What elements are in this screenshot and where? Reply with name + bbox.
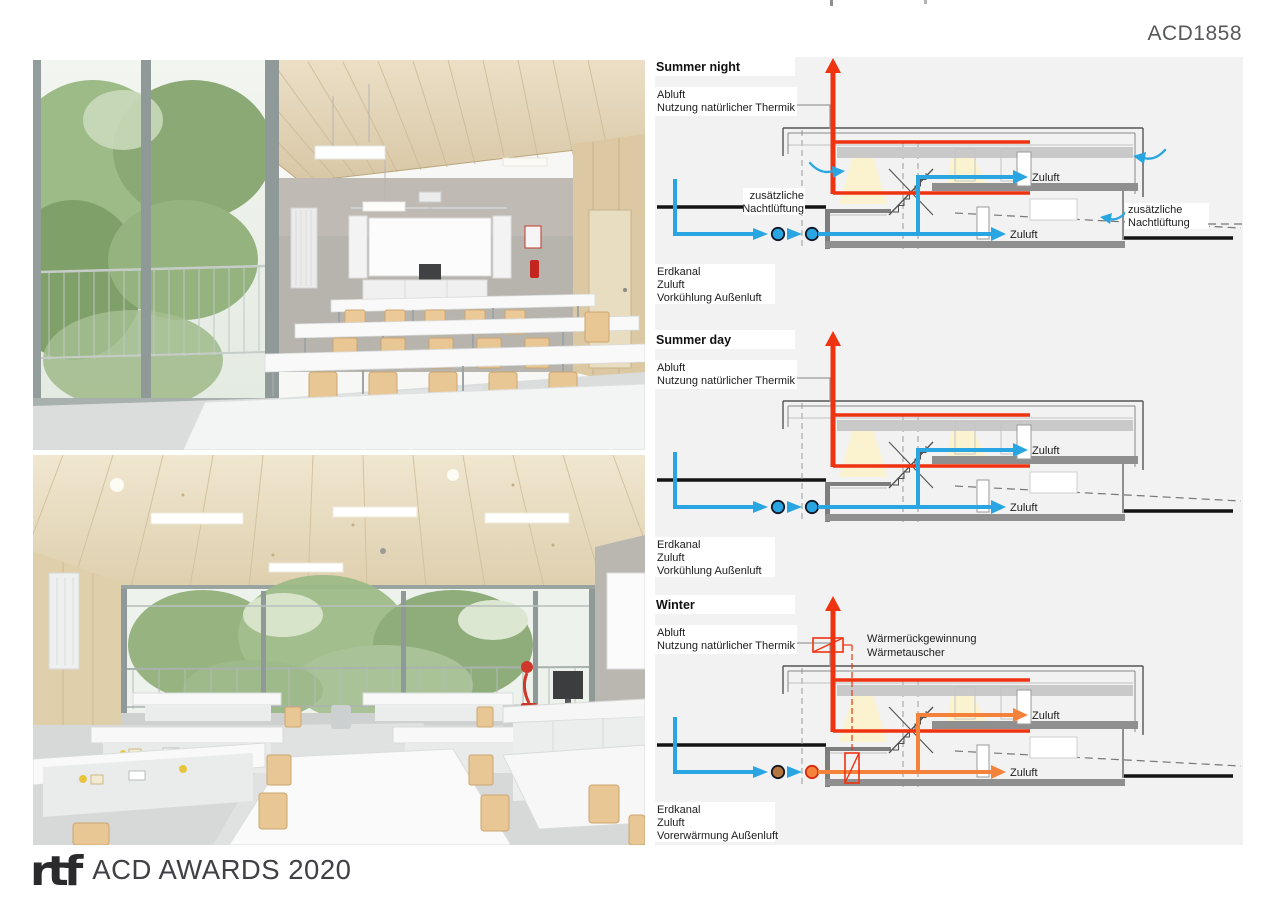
heat-exchanger-group	[813, 638, 859, 783]
duct-damper	[806, 766, 818, 778]
radiator	[291, 208, 317, 288]
window-frame	[589, 589, 595, 713]
label-zuluft: Zuluft	[657, 817, 685, 829]
label-night-vent: zusätzliche	[1128, 204, 1182, 216]
duct-damper	[772, 766, 784, 778]
exhaust-arrowhead	[825, 331, 841, 346]
label-thermik: Nutzung natürlicher Thermik	[657, 375, 795, 387]
photo-science-lab	[33, 455, 645, 845]
building-section	[783, 666, 1143, 787]
diagram-title: Summer day	[656, 333, 731, 347]
label-abluft: Abluft	[657, 627, 685, 639]
window-mullion	[265, 60, 279, 400]
photo-classroom-window-wall	[33, 60, 645, 450]
label-zuluft: Zuluft	[657, 552, 685, 564]
window-mullion	[141, 60, 151, 404]
supply-arrowhead	[991, 500, 1006, 514]
label-night-vent: Nachtlüftung	[742, 203, 804, 215]
duct-damper	[806, 228, 818, 240]
diagram-summer-night: zusätzlicheNachtlüftungzusätzlicheNachtl…	[655, 57, 1243, 309]
duct-damper	[772, 501, 784, 513]
window-frame	[121, 589, 127, 713]
rtf-logo: rtf	[30, 849, 78, 890]
duct-damper	[806, 501, 818, 513]
label-thermik: Nutzung natürlicher Thermik	[657, 640, 795, 652]
wood-plank-ceiling	[33, 455, 645, 589]
window-frame	[33, 60, 41, 406]
label-erdkanal: Erdkanal	[657, 804, 700, 816]
label-heat-exchanger: Wärmetauscher	[867, 647, 945, 659]
label-zuluft-lower: Zuluft	[1010, 767, 1038, 779]
label-zuluft-upper: Zuluft	[1032, 445, 1060, 457]
exhaust-arrowhead	[825, 596, 841, 611]
label-heat-recovery: Wärmerückgewinnung	[867, 633, 976, 645]
label-outside-air: Vorkühlung Außenluft	[657, 292, 762, 304]
footer: rtf ACD AWARDS 2020	[30, 845, 351, 895]
duct-damper	[772, 228, 784, 240]
window-wall	[33, 60, 279, 410]
label-abluft: Abluft	[657, 89, 685, 101]
window-mullion	[533, 591, 538, 713]
building-section	[783, 401, 1143, 522]
label-zuluft-upper: Zuluft	[1032, 172, 1060, 184]
label-outside-air: Vorkühlung Außenluft	[657, 565, 762, 577]
label-zuluft-lower: Zuluft	[1010, 229, 1038, 241]
label-zuluft: Zuluft	[657, 279, 685, 291]
monitor	[553, 671, 583, 699]
lab-photo-illustration	[33, 455, 645, 845]
label-erdkanal: Erdkanal	[657, 266, 700, 278]
project-code: ACD1858	[1147, 22, 1242, 46]
label-abluft: Abluft	[657, 362, 685, 374]
label-zuluft-lower: Zuluft	[1010, 502, 1038, 514]
office-chair	[331, 705, 351, 729]
diagram-title: Winter	[656, 598, 695, 612]
crop-mark	[924, 0, 927, 4]
label-erdkanal: Erdkanal	[657, 539, 700, 551]
diagram-title: Summer night	[656, 60, 741, 74]
supply-arrowhead	[991, 765, 1006, 779]
exhaust-arrowhead	[825, 58, 841, 73]
supply-arrowhead	[991, 227, 1006, 241]
crop-mark	[830, 0, 833, 6]
label-night-vent: zusätzliche	[750, 190, 804, 202]
classroom-photo-illustration	[33, 60, 645, 450]
ventilation-diagrams-panel: zusätzlicheNachtlüftungzusätzlicheNachtl…	[655, 57, 1243, 845]
diagram-winter: WärmerückgewinnungWärmetauscherZuluftZul…	[655, 595, 1243, 847]
label-zuluft-upper: Zuluft	[1032, 710, 1060, 722]
building-section	[783, 128, 1143, 249]
label-night-vent: Nachtlüftung	[1128, 217, 1190, 229]
diagram-summer-day: ZuluftZuluftSummer dayAbluftNutzung natü…	[655, 330, 1243, 582]
award-title: ACD AWARDS 2020	[92, 854, 351, 886]
label-outside-air: Vorerwärmung Außenluft	[657, 830, 778, 842]
whiteboard	[607, 573, 645, 669]
label-thermik: Nutzung natürlicher Thermik	[657, 102, 795, 114]
